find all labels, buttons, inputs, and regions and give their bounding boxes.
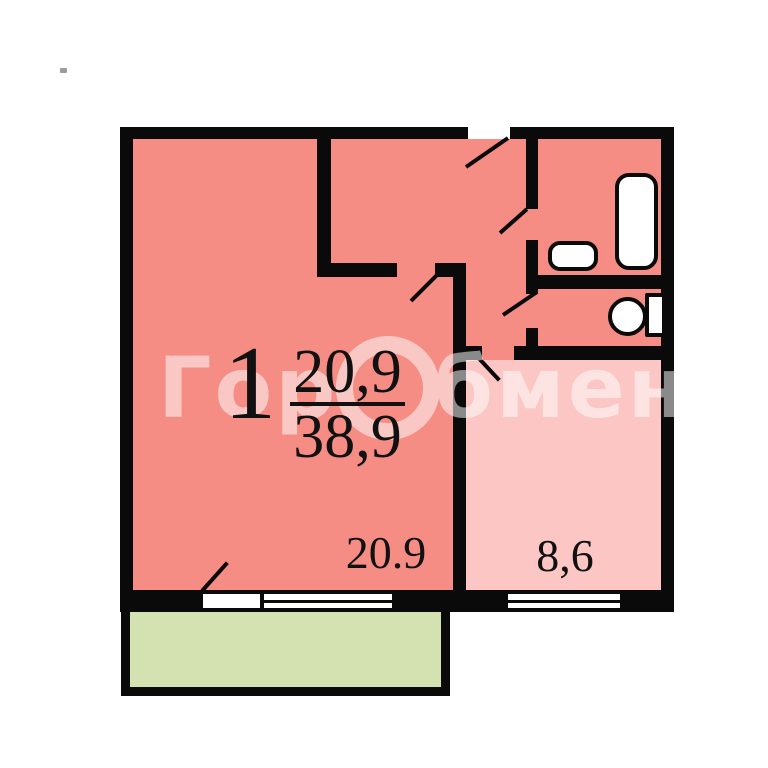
window-glass-line [508, 600, 620, 603]
balcony-door-opening [203, 594, 260, 608]
total-area-denominator: 38,9 [290, 406, 405, 466]
wall-bathroom-bottom [526, 275, 661, 289]
living-room-window [264, 594, 392, 608]
wall-bathroom-left-upper [526, 139, 538, 209]
balcony-floor [130, 612, 441, 687]
balcony-outline [121, 612, 450, 696]
area-fraction: 20,9 38,9 [290, 345, 405, 466]
window-glass-line [264, 600, 392, 603]
stray-mark [60, 68, 67, 73]
watermark-text-suffix: бмен [434, 346, 688, 430]
kitchen-window [508, 594, 620, 608]
total-area-numerator: 20,9 [290, 345, 405, 406]
wall-closet-vertical [317, 139, 331, 277]
kitchen-area-label: 8,6 [522, 533, 608, 579]
bathroom-sink [548, 241, 598, 271]
room-number-label: 1 [215, 330, 285, 435]
wall-top-right [510, 127, 674, 139]
wall-closet-horizontal [317, 263, 397, 277]
wall-left [120, 127, 133, 612]
floor-plan: Гор бмен 1 20,9 38,9 20.9 8,6 [0, 0, 768, 768]
living-area-label: 20.9 [343, 530, 429, 576]
wall-top-left [120, 127, 468, 139]
bathtub [615, 173, 658, 270]
